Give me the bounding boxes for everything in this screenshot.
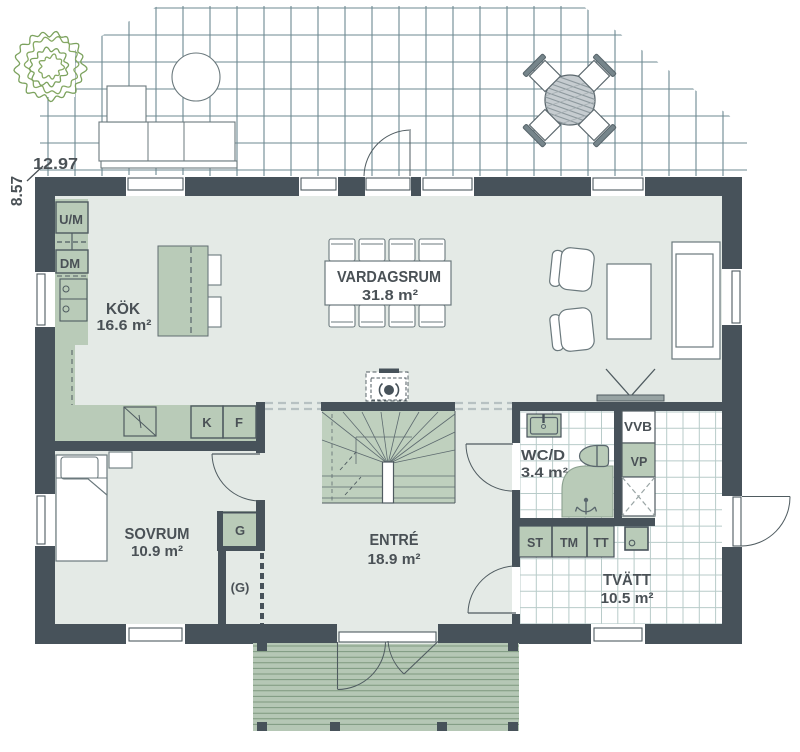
svg-text:12.97: 12.97 <box>33 156 78 173</box>
svg-text:ST: ST <box>527 536 543 550</box>
svg-text:ENTRÉ: ENTRÉ <box>370 530 419 549</box>
svg-text:(G): (G) <box>231 580 250 595</box>
svg-text:TM: TM <box>560 536 578 550</box>
svg-text:TVÄTT: TVÄTT <box>603 571 651 589</box>
svg-text:10.9 m²: 10.9 m² <box>131 543 183 560</box>
svg-text:VP: VP <box>631 455 648 469</box>
svg-text:KÖK: KÖK <box>106 299 140 318</box>
svg-text:G: G <box>235 523 245 538</box>
svg-text:31.8 m²: 31.8 m² <box>362 287 418 304</box>
svg-text:3.4 m²: 3.4 m² <box>521 464 568 480</box>
svg-text:VVB: VVB <box>624 420 652 434</box>
svg-text:K: K <box>202 415 212 430</box>
svg-text:U/M: U/M <box>59 212 83 227</box>
svg-text:DM: DM <box>60 256 80 271</box>
svg-text:F: F <box>235 415 243 430</box>
svg-text:10.5 m²: 10.5 m² <box>601 590 654 607</box>
svg-text:16.6 m²: 16.6 m² <box>97 317 152 334</box>
svg-text:18.9 m²: 18.9 m² <box>368 551 421 568</box>
svg-text:SOVRUM: SOVRUM <box>125 526 190 543</box>
svg-text:VARDAGSRUM: VARDAGSRUM <box>337 269 441 286</box>
svg-text:8.57: 8.57 <box>9 176 26 206</box>
svg-text:TT: TT <box>593 536 609 550</box>
svg-text:WC/D: WC/D <box>521 447 565 464</box>
